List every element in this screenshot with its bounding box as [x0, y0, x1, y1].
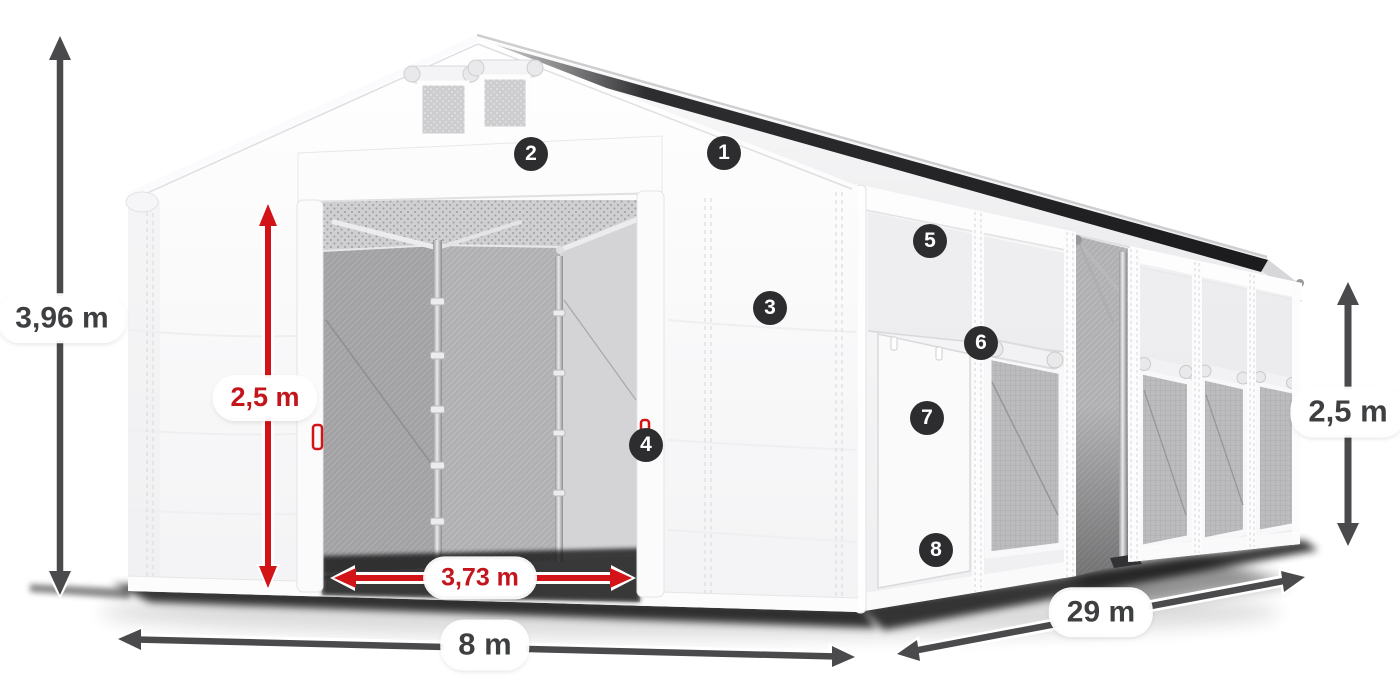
- gap-corner-pole: [1119, 252, 1127, 560]
- side-window-3: [1255, 372, 1298, 534]
- window-rolled-cover: [1262, 377, 1290, 383]
- marker-3[interactable]: 3: [753, 291, 787, 325]
- entrance-post-right: [637, 191, 664, 597]
- product-visual: 3,96 m 2,5 m 3,73 m 8 m 29 m 2,5 m 1 2 3…: [0, 0, 1400, 700]
- marker-8[interactable]: 8: [919, 533, 953, 567]
- interior-far-opening: [560, 214, 640, 560]
- side-window-front: [987, 341, 1063, 555]
- door-hook: [936, 347, 942, 360]
- interior-mesh-wall-mid: [438, 246, 560, 566]
- side-window-2: [1199, 365, 1249, 541]
- marker-6[interactable]: 6: [964, 326, 998, 360]
- tent-illustration: [0, 0, 1400, 700]
- vent-window-1: [420, 83, 467, 136]
- dimension-label-entrance-height: 2,5 m: [215, 378, 314, 418]
- window-rolled-cover: [1207, 371, 1241, 378]
- marker-7[interactable]: 7: [910, 401, 944, 435]
- door-hook: [891, 337, 897, 350]
- marker-1[interactable]: 1: [707, 136, 741, 170]
- gable-left-shade: [128, 196, 160, 591]
- dimension-label-side-height: 2,5 m: [1293, 390, 1400, 435]
- dimension-label-span-width: 8 m: [443, 623, 526, 668]
- dimension-label-entrance-width: 3,73 m: [426, 559, 534, 596]
- dimension-label-length: 29 m: [1052, 590, 1150, 634]
- marker-5[interactable]: 5: [913, 224, 947, 258]
- entrance-interior: [322, 200, 640, 602]
- marker-4[interactable]: 4: [629, 428, 663, 462]
- window-rolled-cover: [1146, 364, 1184, 372]
- marker-2[interactable]: 2: [514, 137, 548, 171]
- side-window-1: [1138, 358, 1193, 549]
- vent-window-2: [482, 77, 528, 129]
- interior-mesh-wall-left: [322, 246, 438, 580]
- dimension-label-overall-height: 3,96 m: [0, 296, 123, 340]
- eave-corner-cap: [126, 192, 158, 212]
